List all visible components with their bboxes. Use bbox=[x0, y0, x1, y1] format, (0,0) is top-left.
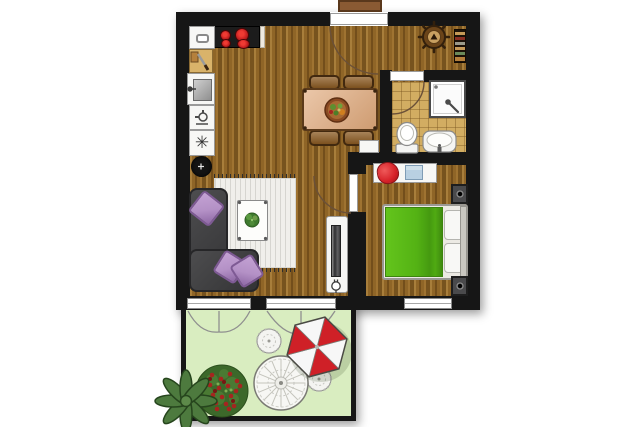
floor-plan-canvas: ✳ bbox=[0, 0, 640, 427]
stove-burner bbox=[221, 31, 230, 40]
kitchen-stove bbox=[214, 26, 260, 48]
kitchen-dishwasher-unit bbox=[189, 105, 215, 130]
entrance-door bbox=[330, 13, 388, 25]
small-cabinet bbox=[359, 140, 379, 153]
stove-burner bbox=[238, 40, 249, 48]
entrance-doormat bbox=[338, 0, 382, 12]
sink-basin bbox=[193, 79, 212, 101]
bedroom-door bbox=[349, 174, 358, 212]
nightstand bbox=[451, 276, 468, 296]
bathroom-left-wall bbox=[380, 70, 392, 165]
wall-top-left bbox=[176, 12, 330, 26]
bed-duvet bbox=[385, 207, 443, 277]
nightstand bbox=[451, 184, 468, 204]
round-stool bbox=[191, 156, 212, 177]
kitchen-freezer-unit: ✳ bbox=[189, 130, 215, 156]
dining-table bbox=[302, 88, 378, 131]
bathroom-door bbox=[390, 71, 424, 81]
kitchen-counter bbox=[260, 26, 265, 48]
kitchen-sink-unit bbox=[187, 73, 215, 105]
bedroom-window bbox=[404, 298, 452, 309]
terrace-lawn bbox=[186, 309, 351, 416]
living-window-1 bbox=[187, 298, 251, 309]
freezer-snowflake-icon: ✳ bbox=[190, 131, 214, 155]
wall-right bbox=[466, 12, 480, 310]
stove-burner bbox=[222, 40, 230, 47]
coffee-table bbox=[237, 200, 268, 241]
bed-headboard bbox=[460, 206, 467, 278]
microwave-icon bbox=[196, 34, 209, 43]
living-bedroom-wall-upper bbox=[348, 152, 366, 174]
folded-shirt bbox=[405, 165, 423, 180]
living-window-2 bbox=[266, 298, 336, 309]
shower-cabin bbox=[429, 80, 466, 118]
hallway-shelf bbox=[454, 29, 466, 63]
dining-chair bbox=[309, 130, 340, 146]
kitchen-microwave-unit bbox=[189, 26, 215, 49]
tv bbox=[331, 225, 341, 277]
kitchen-cutting-board bbox=[189, 49, 213, 73]
living-bedroom-wall-lower bbox=[348, 212, 366, 296]
wall-left bbox=[176, 12, 190, 310]
